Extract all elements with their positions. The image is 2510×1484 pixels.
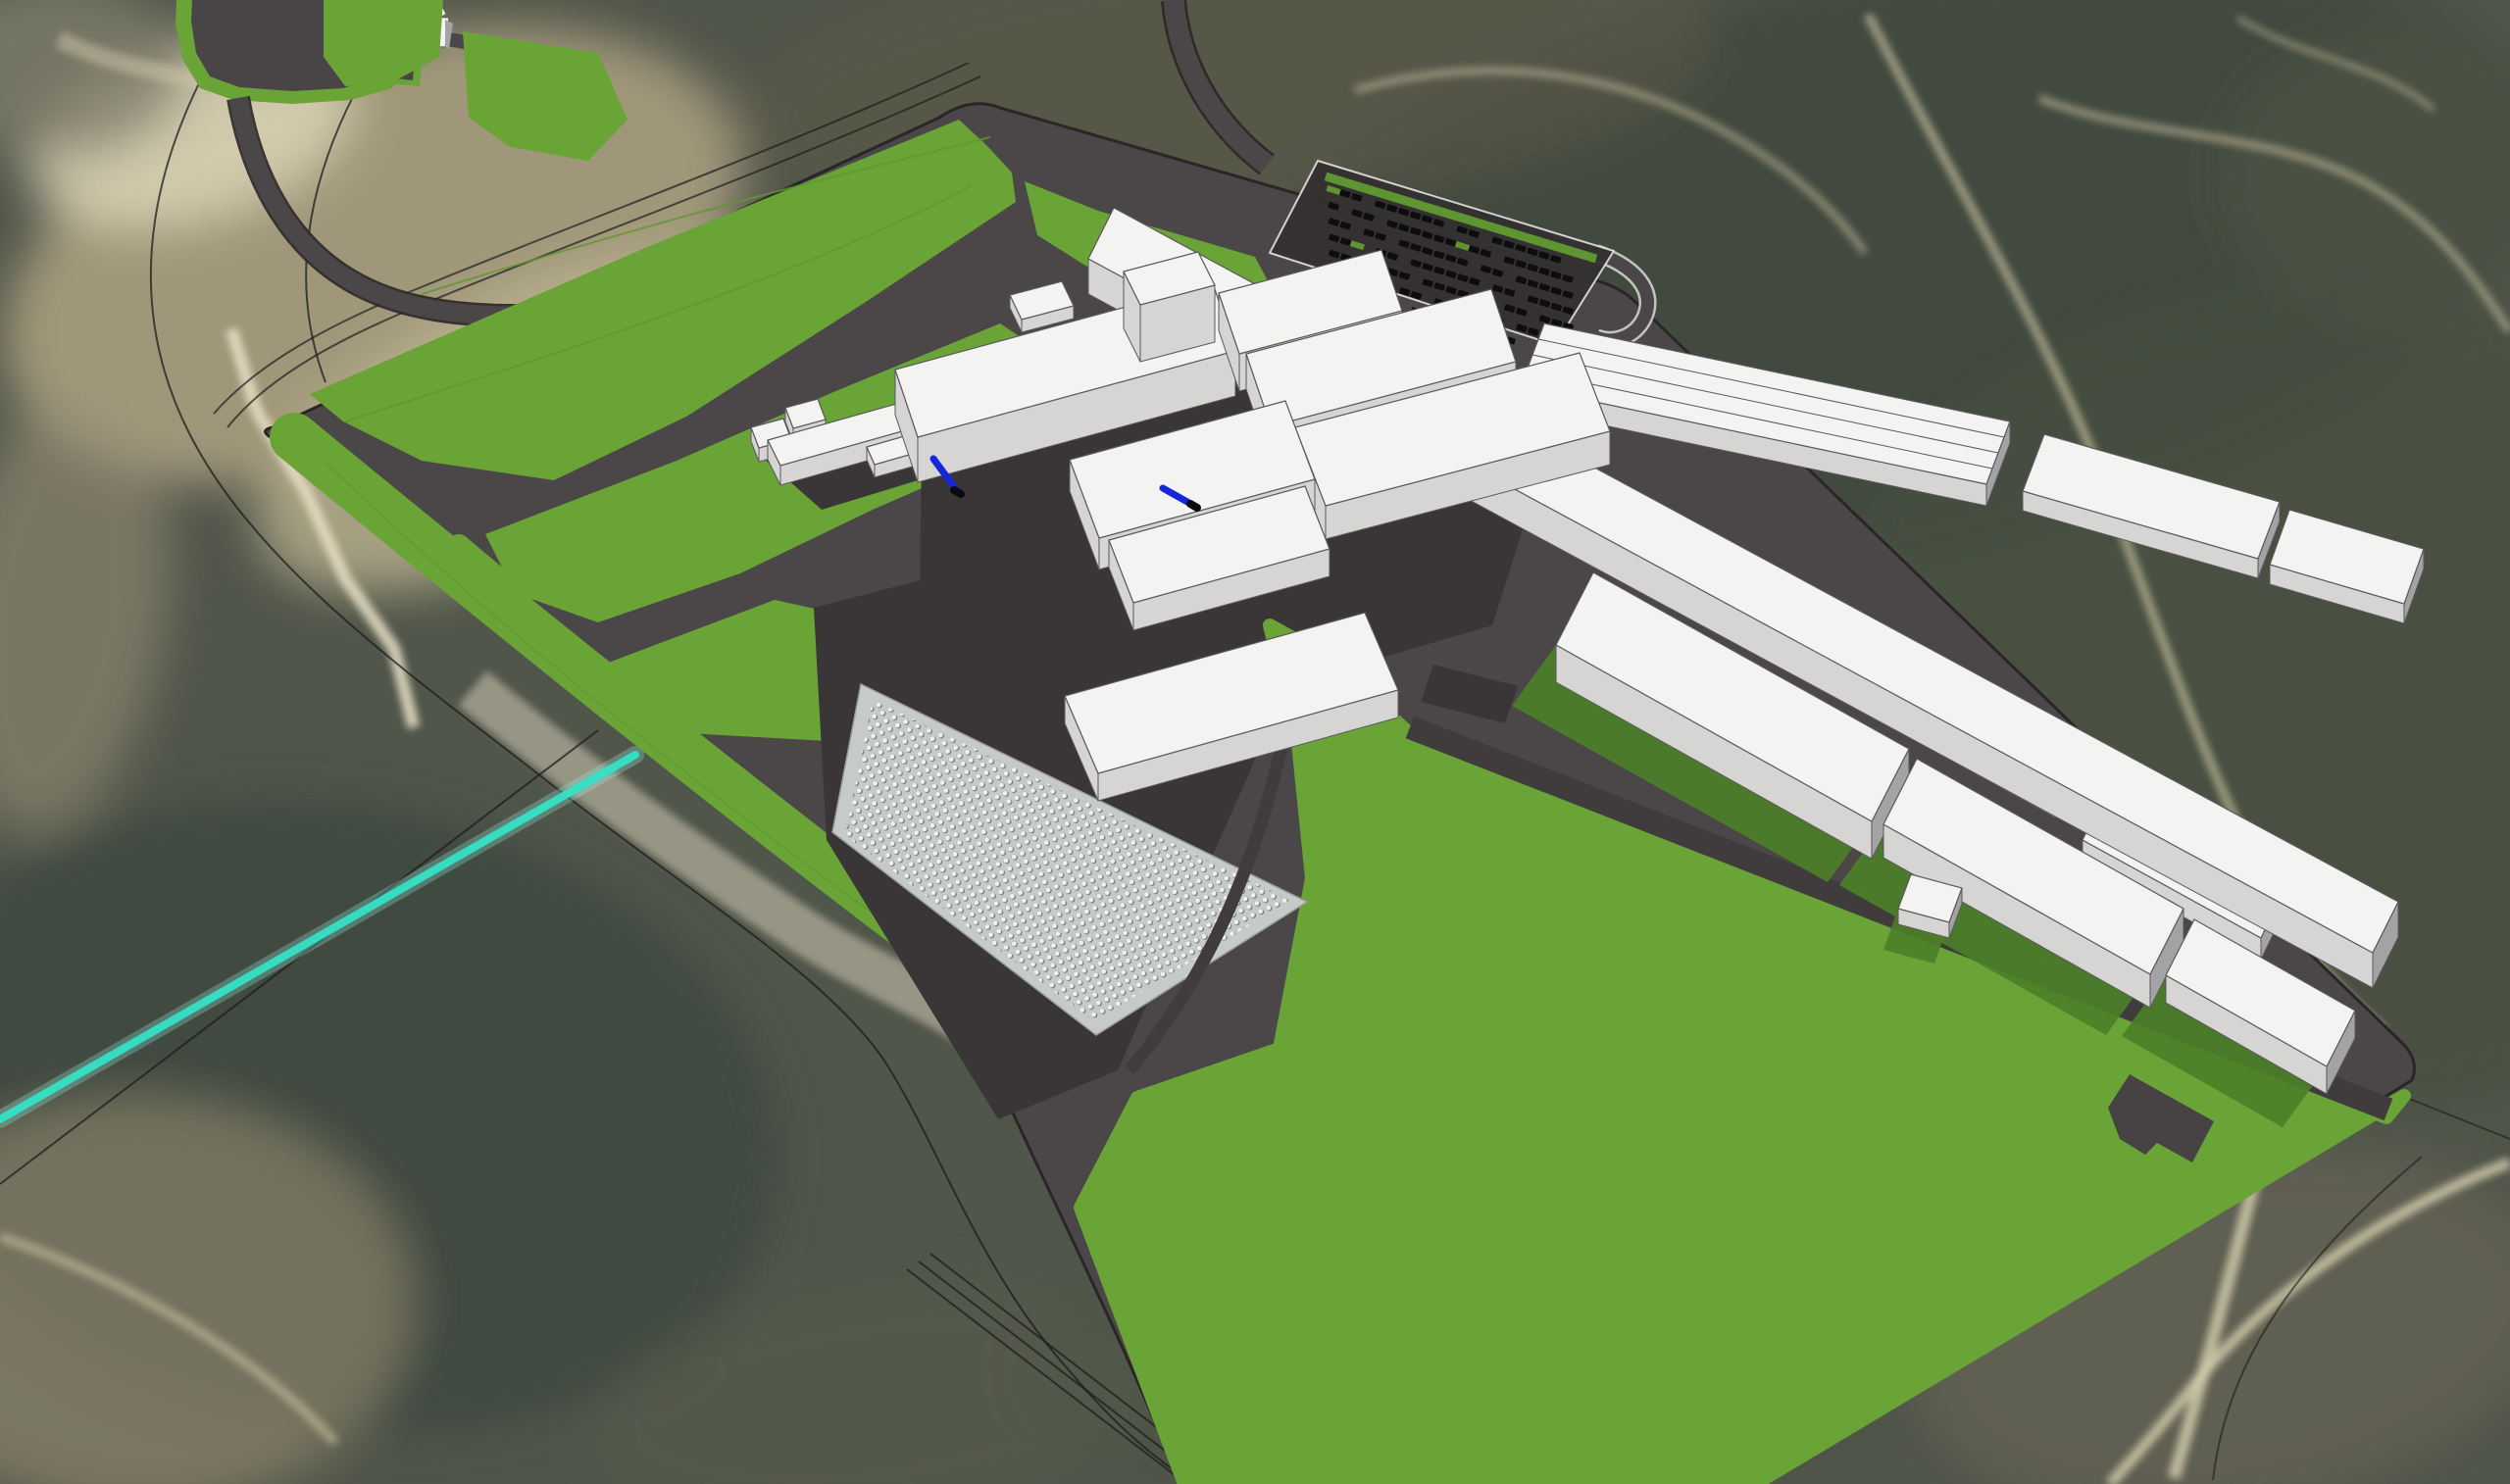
site-render: Aerial 3D architectural rendering of a l… bbox=[0, 0, 2510, 1484]
factory-campus-rendering bbox=[0, 0, 2510, 1484]
